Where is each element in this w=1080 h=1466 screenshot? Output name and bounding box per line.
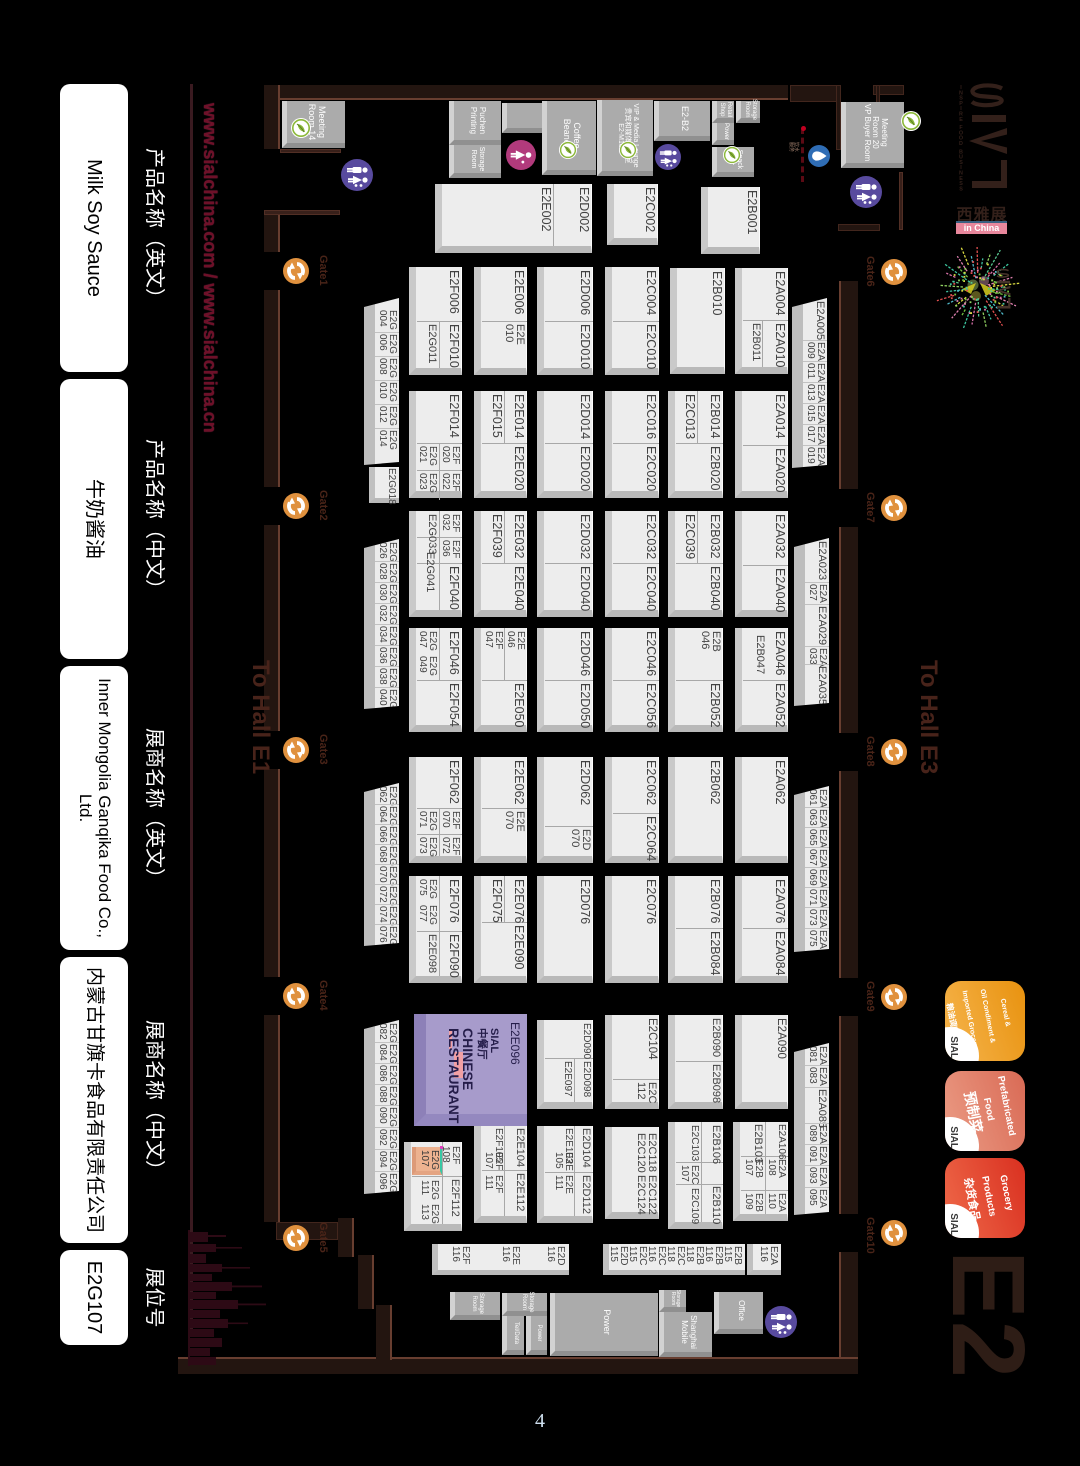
svg-text:S: S bbox=[959, 186, 963, 192]
svg-text:E: E bbox=[959, 117, 963, 123]
svg-text:D: D bbox=[959, 141, 963, 147]
